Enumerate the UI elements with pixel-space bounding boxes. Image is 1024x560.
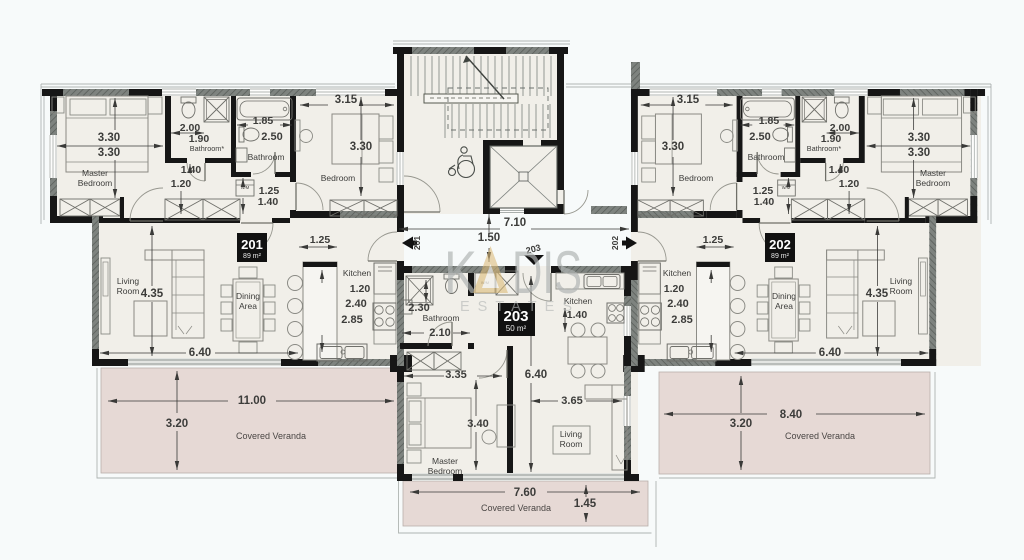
svg-text:3.30: 3.30 xyxy=(662,141,684,153)
svg-text:3.40: 3.40 xyxy=(467,418,488,430)
svg-text:Area: Area xyxy=(239,301,257,311)
svg-text:Room: Room xyxy=(117,286,140,296)
svg-text:1.25: 1.25 xyxy=(703,234,724,246)
svg-text:Bedroom: Bedroom xyxy=(78,178,113,188)
svg-text:1.25: 1.25 xyxy=(310,234,331,246)
svg-text:3.15: 3.15 xyxy=(677,94,700,106)
svg-text:3.20: 3.20 xyxy=(166,418,188,430)
svg-text:1.40: 1.40 xyxy=(181,164,202,176)
svg-text:6.40: 6.40 xyxy=(819,347,841,359)
svg-text:Master: Master xyxy=(920,168,946,178)
svg-text:4.35: 4.35 xyxy=(866,288,889,300)
svg-text:Kitchen: Kitchen xyxy=(663,268,692,278)
svg-text:K: K xyxy=(444,239,477,306)
svg-text:Master: Master xyxy=(82,168,108,178)
svg-text:Room: Room xyxy=(560,439,583,449)
svg-text:2.40: 2.40 xyxy=(667,298,688,310)
svg-text:Bathroom: Bathroom xyxy=(748,152,785,162)
svg-text:2.50: 2.50 xyxy=(749,131,770,143)
svg-text:1.40: 1.40 xyxy=(754,196,775,208)
svg-text:6.40: 6.40 xyxy=(525,369,547,381)
svg-text:Bedroom: Bedroom xyxy=(428,466,463,476)
svg-text:Covered Veranda: Covered Veranda xyxy=(236,431,306,441)
svg-text:89 m²: 89 m² xyxy=(771,253,790,260)
svg-text:2.40: 2.40 xyxy=(345,298,366,310)
svg-text:1.20: 1.20 xyxy=(664,283,685,295)
svg-text:7.60: 7.60 xyxy=(514,487,536,499)
svg-text:1.45: 1.45 xyxy=(574,498,597,510)
svg-text:Living: Living xyxy=(890,276,912,286)
svg-text:Bathroom: Bathroom xyxy=(248,152,285,162)
svg-text:202: 202 xyxy=(769,237,791,252)
svg-text:Kitchen: Kitchen xyxy=(343,268,372,278)
svg-text:DIS: DIS xyxy=(512,239,582,306)
svg-text:3.15: 3.15 xyxy=(335,94,358,106)
svg-text:2.50: 2.50 xyxy=(261,131,282,143)
svg-text:Living: Living xyxy=(117,276,139,286)
svg-text:Bathroom*: Bathroom* xyxy=(190,144,225,153)
svg-text:Covered Veranda: Covered Veranda xyxy=(785,431,855,441)
svg-text:W/M: W/M xyxy=(782,185,791,190)
svg-text:3.30: 3.30 xyxy=(98,132,120,144)
svg-text:1.85: 1.85 xyxy=(759,115,780,127)
svg-text:1.40: 1.40 xyxy=(258,196,279,208)
svg-text:7.10: 7.10 xyxy=(504,217,526,229)
svg-text:1.20: 1.20 xyxy=(350,283,371,295)
svg-text:6.40: 6.40 xyxy=(189,347,211,359)
svg-text:3.30: 3.30 xyxy=(350,141,372,153)
svg-text:201: 201 xyxy=(241,237,263,252)
svg-text:201: 201 xyxy=(412,236,422,250)
svg-text:3.20: 3.20 xyxy=(730,418,752,430)
svg-text:1.85: 1.85 xyxy=(253,115,274,127)
svg-text:W/M: W/M xyxy=(241,185,250,190)
svg-text:Dining: Dining xyxy=(772,291,796,301)
svg-text:2.85: 2.85 xyxy=(671,314,692,326)
svg-text:2.85: 2.85 xyxy=(341,314,362,326)
svg-text:1.50: 1.50 xyxy=(478,232,500,244)
svg-text:Bathroom*: Bathroom* xyxy=(807,144,842,153)
svg-text:Dining: Dining xyxy=(236,291,260,301)
svg-text:Bedroom: Bedroom xyxy=(679,173,714,183)
svg-text:8.40: 8.40 xyxy=(780,409,802,421)
svg-text:3.30: 3.30 xyxy=(908,132,930,144)
svg-text:1.40: 1.40 xyxy=(829,164,850,176)
svg-text:2.10: 2.10 xyxy=(429,327,450,339)
svg-text:Bathroom: Bathroom xyxy=(423,313,460,323)
svg-text:89 m²: 89 m² xyxy=(243,253,262,260)
svg-text:1.20: 1.20 xyxy=(839,178,860,190)
svg-text:Master: Master xyxy=(432,456,458,466)
svg-text:Living: Living xyxy=(560,429,582,439)
svg-text:3.30: 3.30 xyxy=(908,147,930,159)
svg-text:11.00: 11.00 xyxy=(238,395,266,407)
svg-text:Bedroom: Bedroom xyxy=(916,178,951,188)
svg-text:1.20: 1.20 xyxy=(171,178,192,190)
svg-text:202: 202 xyxy=(610,236,620,250)
svg-text:Area: Area xyxy=(775,301,793,311)
svg-text:3.30: 3.30 xyxy=(98,147,120,159)
svg-text:4.35: 4.35 xyxy=(141,288,164,300)
svg-text:Room: Room xyxy=(890,286,913,296)
svg-text:3.35: 3.35 xyxy=(445,369,466,381)
svg-text:Bedroom: Bedroom xyxy=(321,173,356,183)
svg-text:50 m²: 50 m² xyxy=(506,324,527,333)
svg-text:3.65: 3.65 xyxy=(561,395,582,407)
svg-text:Covered Veranda: Covered Veranda xyxy=(481,503,551,513)
